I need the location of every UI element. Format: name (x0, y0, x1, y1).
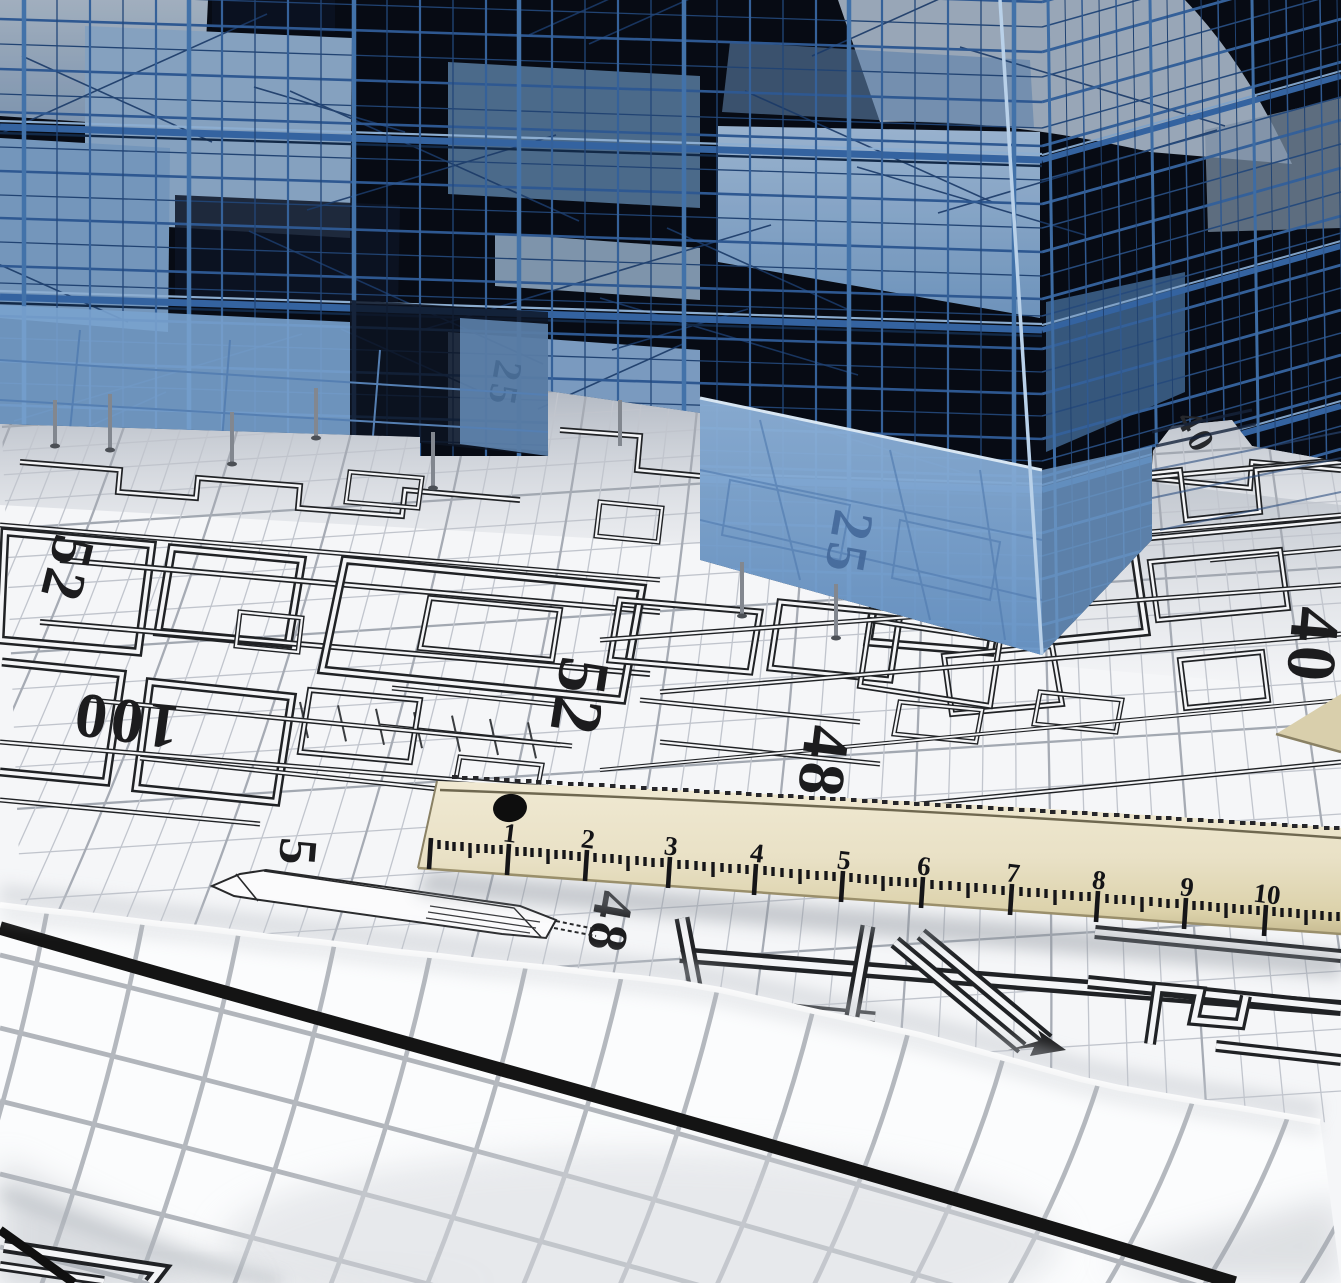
svg-text:100: 100 (67, 679, 184, 764)
svg-text:52: 52 (534, 652, 626, 744)
svg-text:48: 48 (783, 721, 864, 803)
svg-text:25: 25 (479, 357, 532, 412)
svg-text:25: 25 (811, 505, 886, 581)
svg-text:40: 40 (1271, 604, 1341, 688)
svg-text:5: 5 (267, 836, 329, 872)
